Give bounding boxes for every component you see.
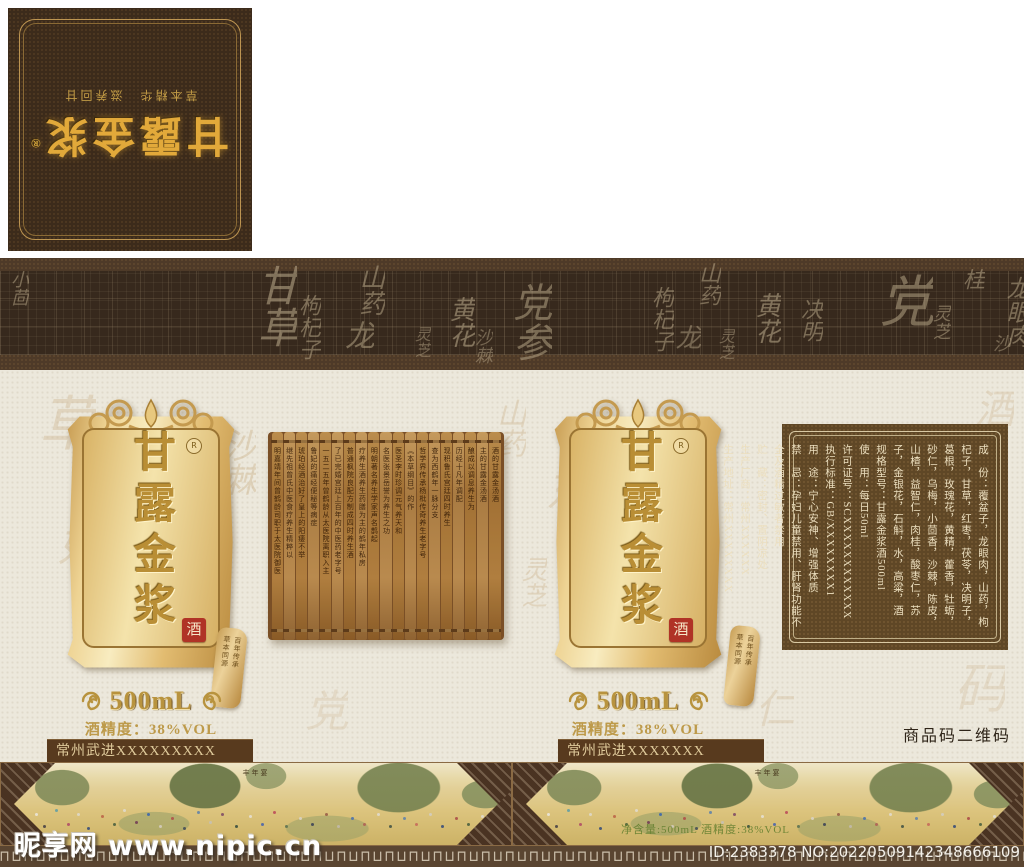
package-design-canvas: 甘露金浆® 草本精华 滋养回甘 小茴甘草枸杞子山药龙灵芝黄花党参沙棘枸杞子山药龙… [0, 0, 1024, 867]
bamboo-slat-text: 明嘉靖年间曾鹤龄司职于太医院御医 [272, 447, 283, 575]
herb-calligraphy-char: 小茴 [6, 270, 32, 306]
top-flap-panel: 甘露金浆® 草本精华 滋养回甘 [8, 8, 252, 251]
bamboo-slat-text: 酒的甘露金汤酒 [490, 447, 501, 503]
herb-calligraphy-char: 黄花 [748, 292, 785, 344]
alcohol-content: 酒精度：38%VOL [66, 718, 236, 739]
bamboo-slat: 继先祖曾氏中医食疗养生精粹以 [284, 432, 295, 640]
herb-calligraphy-char: 山药 [692, 262, 724, 306]
spec-entry: 执行标准：GB/XXXXXXXX1 [821, 444, 838, 632]
spec-entry: 生产地址：常州XXXXXXXX [719, 444, 736, 632]
herb-calligraphy-char: 灵芝 [712, 328, 736, 360]
bamboo-slat: 一五二五年曾鹤龄从太医院离职入主 [320, 432, 331, 640]
gold-plaque-right: 甘露金浆 R 酒 [553, 398, 723, 670]
herb-calligraphy-char: 沙 [988, 334, 1014, 352]
bamboo-slat: 《本草纲目》的作 [405, 432, 416, 640]
herb-calligraphy-char: 沙棘 [470, 328, 496, 364]
stock-id-watermark: ID:2383378 NO:20220509142348666109 [709, 843, 1020, 861]
bamboo-slat: 现积鲁氏宫廷四时养生 [441, 432, 452, 640]
volume-block-left: 500mL 酒精度：38%VOL [66, 686, 236, 739]
bamboo-slat-text: 明朝著名养生学家声名鹊起 [368, 447, 379, 543]
stock-site-watermark: 昵享网 www.nipic.cn [14, 824, 322, 863]
volume-block-right: 500mL 酒精度：38%VOL [553, 686, 723, 739]
bamboo-slat-text: 继先祖曾氏中医食疗养生精粹以 [284, 447, 295, 559]
bamboo-slat: 鲁妃的痛经便秘等病症 [308, 432, 319, 640]
scroll-flourish-icon [81, 691, 105, 711]
bamboo-slat: 名医张景岳誉为养生之功 [380, 432, 391, 640]
herb-calligraphy-char: 山药 [352, 264, 389, 316]
herb-calligraphy-char: 决明 [794, 298, 826, 342]
registered-mark-icon: R [673, 438, 689, 454]
spec-entry: 许可证号：SCXXXXXXXXXXXX [838, 444, 855, 632]
bamboo-slat-text: 了已完婚宫廷上百年的中医药老字号 [332, 447, 343, 575]
producer-bar-left: 常州武进XXXXXXXXX [47, 739, 253, 762]
plaque-brand-title: 甘露金浆 [121, 430, 182, 634]
registered-mark-icon: R [186, 438, 202, 454]
painting-title: 丰年宴 [755, 768, 782, 778]
spec-entry: 规格型号：甘露金浆酒500ml [872, 444, 889, 632]
plaque-brand-title: 甘露金浆 [608, 430, 669, 634]
bamboo-slat: 普通枫院良配方制成四时养生酒 [344, 432, 355, 640]
net-volume: 500mL [597, 686, 680, 716]
flap-brand-text: 甘露金浆 [41, 111, 229, 157]
bamboo-scroll: 明嘉靖年间曾鹤龄司职于太医院御医 继先祖曾氏中医食疗养生精粹以 琥珀经酒治好了皇… [268, 432, 504, 640]
bamboo-slat-text: 现积鲁氏宫廷四时养生 [441, 447, 452, 527]
bamboo-slat: 疗养生酒养生药膳为主的鹤年私房 [356, 432, 367, 640]
bamboo-slat: 了已完婚宫廷上百年的中医药老字号 [332, 432, 343, 640]
scroll-flourish-icon [198, 691, 222, 711]
spec-entry: 成 份：覆盆子，龙眼肉，山药，枸杞子，甘草，红枣，茯苓，决明子，葛根，玫瑰花，黄… [889, 444, 991, 632]
herb-calligraphy-char: 灵芝 [928, 304, 954, 340]
bamboo-slat: 历经十凡年调配 [453, 432, 464, 640]
watermark-calligraphy-char: 酒 [962, 388, 1020, 428]
painting-title: 丰年宴 [243, 768, 270, 778]
net-volume: 500mL [110, 686, 193, 716]
herb-calligraphy-char: 桂 [956, 268, 988, 290]
flap-brand-title: 甘露金浆® [8, 112, 252, 165]
bamboo-slat-text: 鲁妃的痛经便秘等病症 [308, 447, 319, 527]
ingredients-spec-panel: 成 份：覆盆子，龙眼肉，山药，枸杞子，甘草，红枣，茯苓，决明子，葛根，玫瑰花，黄… [782, 424, 1008, 650]
painting-net-content: 净含量:500mL 酒精度:38%VOL [621, 821, 790, 837]
bamboo-slat: 明嘉靖年间曾鹤龄司职于太医院御医 [272, 432, 283, 640]
herb-calligraphy-char: 党参 [500, 282, 558, 362]
spec-entry: 贮 藏：密封、置阴凉处 [753, 444, 770, 632]
herb-calligraphy-char: 龙 [334, 320, 378, 350]
spec-vertical-text: 成 份：覆盆子，龙眼肉，山药，枸杞子，甘草，红枣，茯苓，决明子，葛根，玫瑰花，黄… [798, 444, 991, 632]
bamboo-slat: 琥珀经酒治好了皇上的阳痿不举 [296, 432, 307, 640]
scroll-flourish-icon [685, 691, 709, 711]
spec-entry: 用 途：宁心安神、增强体质 [804, 444, 821, 632]
bamboo-slat-text: 历经十凡年调配 [453, 447, 464, 503]
bamboo-slat: 明朝著名养生学家声名鹊起 [368, 432, 379, 640]
bamboo-slat: 哲学界传承杨枇传奇养生老字号 [417, 432, 428, 640]
bamboo-slat-text: 哲学界传承杨枇传奇养生老字号 [417, 447, 428, 559]
registered-mark-icon: ® [31, 136, 41, 151]
herb-calligraphy-char: 灵芝 [408, 326, 432, 358]
spec-entry: 生产厂商：常州XXXXXX [736, 444, 753, 632]
watermark-calligraphy-char: 码 [936, 660, 1015, 714]
bamboo-slat: 酿成以调息养生为 [465, 432, 476, 640]
bamboo-slat-text: 酿成以调息养生为 [465, 447, 476, 511]
bamboo-slat-text: 《本草纲目》的作 [405, 447, 416, 511]
bamboo-slat: 医圣李时珍调元气养天和 [393, 432, 404, 640]
watermark-calligraphy-char: 灵芝 [514, 556, 551, 608]
spec-entry: 使 用：每日50ml [855, 444, 872, 632]
herb-calligraphy-char: 龙 [668, 324, 705, 350]
bamboo-slat-text: 琥珀经酒治好了皇上的阳痿不举 [296, 447, 307, 559]
alcohol-content: 酒精度：38%VOL [553, 718, 723, 739]
bamboo-slat: 酒的甘露金汤酒 [489, 432, 500, 640]
scroll-flourish-icon [568, 691, 592, 711]
bamboo-slat-text: 疗养生酒养生药膳为主的鹤年私房 [356, 447, 367, 567]
barcode-placeholder-label: 商品码二维码 [903, 722, 1011, 746]
flap-rotated-content: 甘露金浆® 草本精华 滋养回甘 [8, 8, 252, 251]
bamboo-slat-text: 查为西鹤年一脉分支 [429, 447, 440, 519]
bamboo-slat-text: 医圣李时珍调元气养天和 [393, 447, 404, 535]
bamboo-slat-text: 一五二五年曾鹤龄从太医院离职入主 [320, 447, 331, 575]
flap-subtitle: 草本精华 滋养回甘 [8, 87, 252, 104]
bamboo-slat-text: 普通枫院良配方制成四时养生酒 [344, 447, 355, 559]
herb-calligraphy-char: 枸杞子 [292, 294, 324, 360]
watermark-calligraphy-char: 党 [290, 688, 354, 732]
bamboo-slat-text: 名医张景岳誉为养生之功 [381, 447, 392, 535]
calligraphy-band: 小茴甘草枸杞子山药龙灵芝黄花党参沙棘枸杞子山药龙灵芝黄花决明党灵芝桂龙眼肉沙 百… [0, 258, 1024, 370]
wine-red-seal: 酒 [182, 618, 206, 642]
bamboo-slat: 查为西鹤年一脉分支 [429, 432, 440, 640]
bamboo-slat-text: 主的甘露金汤酒 [477, 447, 488, 503]
gold-plaque-left: 甘露金浆 R 酒 [66, 398, 236, 670]
producer-bar-right: 常州武进XXXXXXX [558, 739, 764, 762]
bamboo-slat: 主的甘露金汤酒 [477, 432, 488, 640]
wine-red-seal: 酒 [669, 618, 693, 642]
painting-panel: 丰年宴 净含量:500mL 酒精度:38%VOL [512, 762, 1024, 846]
spec-entry: 禁 忌：孕妇儿童禁用、肝肾功能不全及酒精过敏者禁用 [770, 444, 804, 632]
